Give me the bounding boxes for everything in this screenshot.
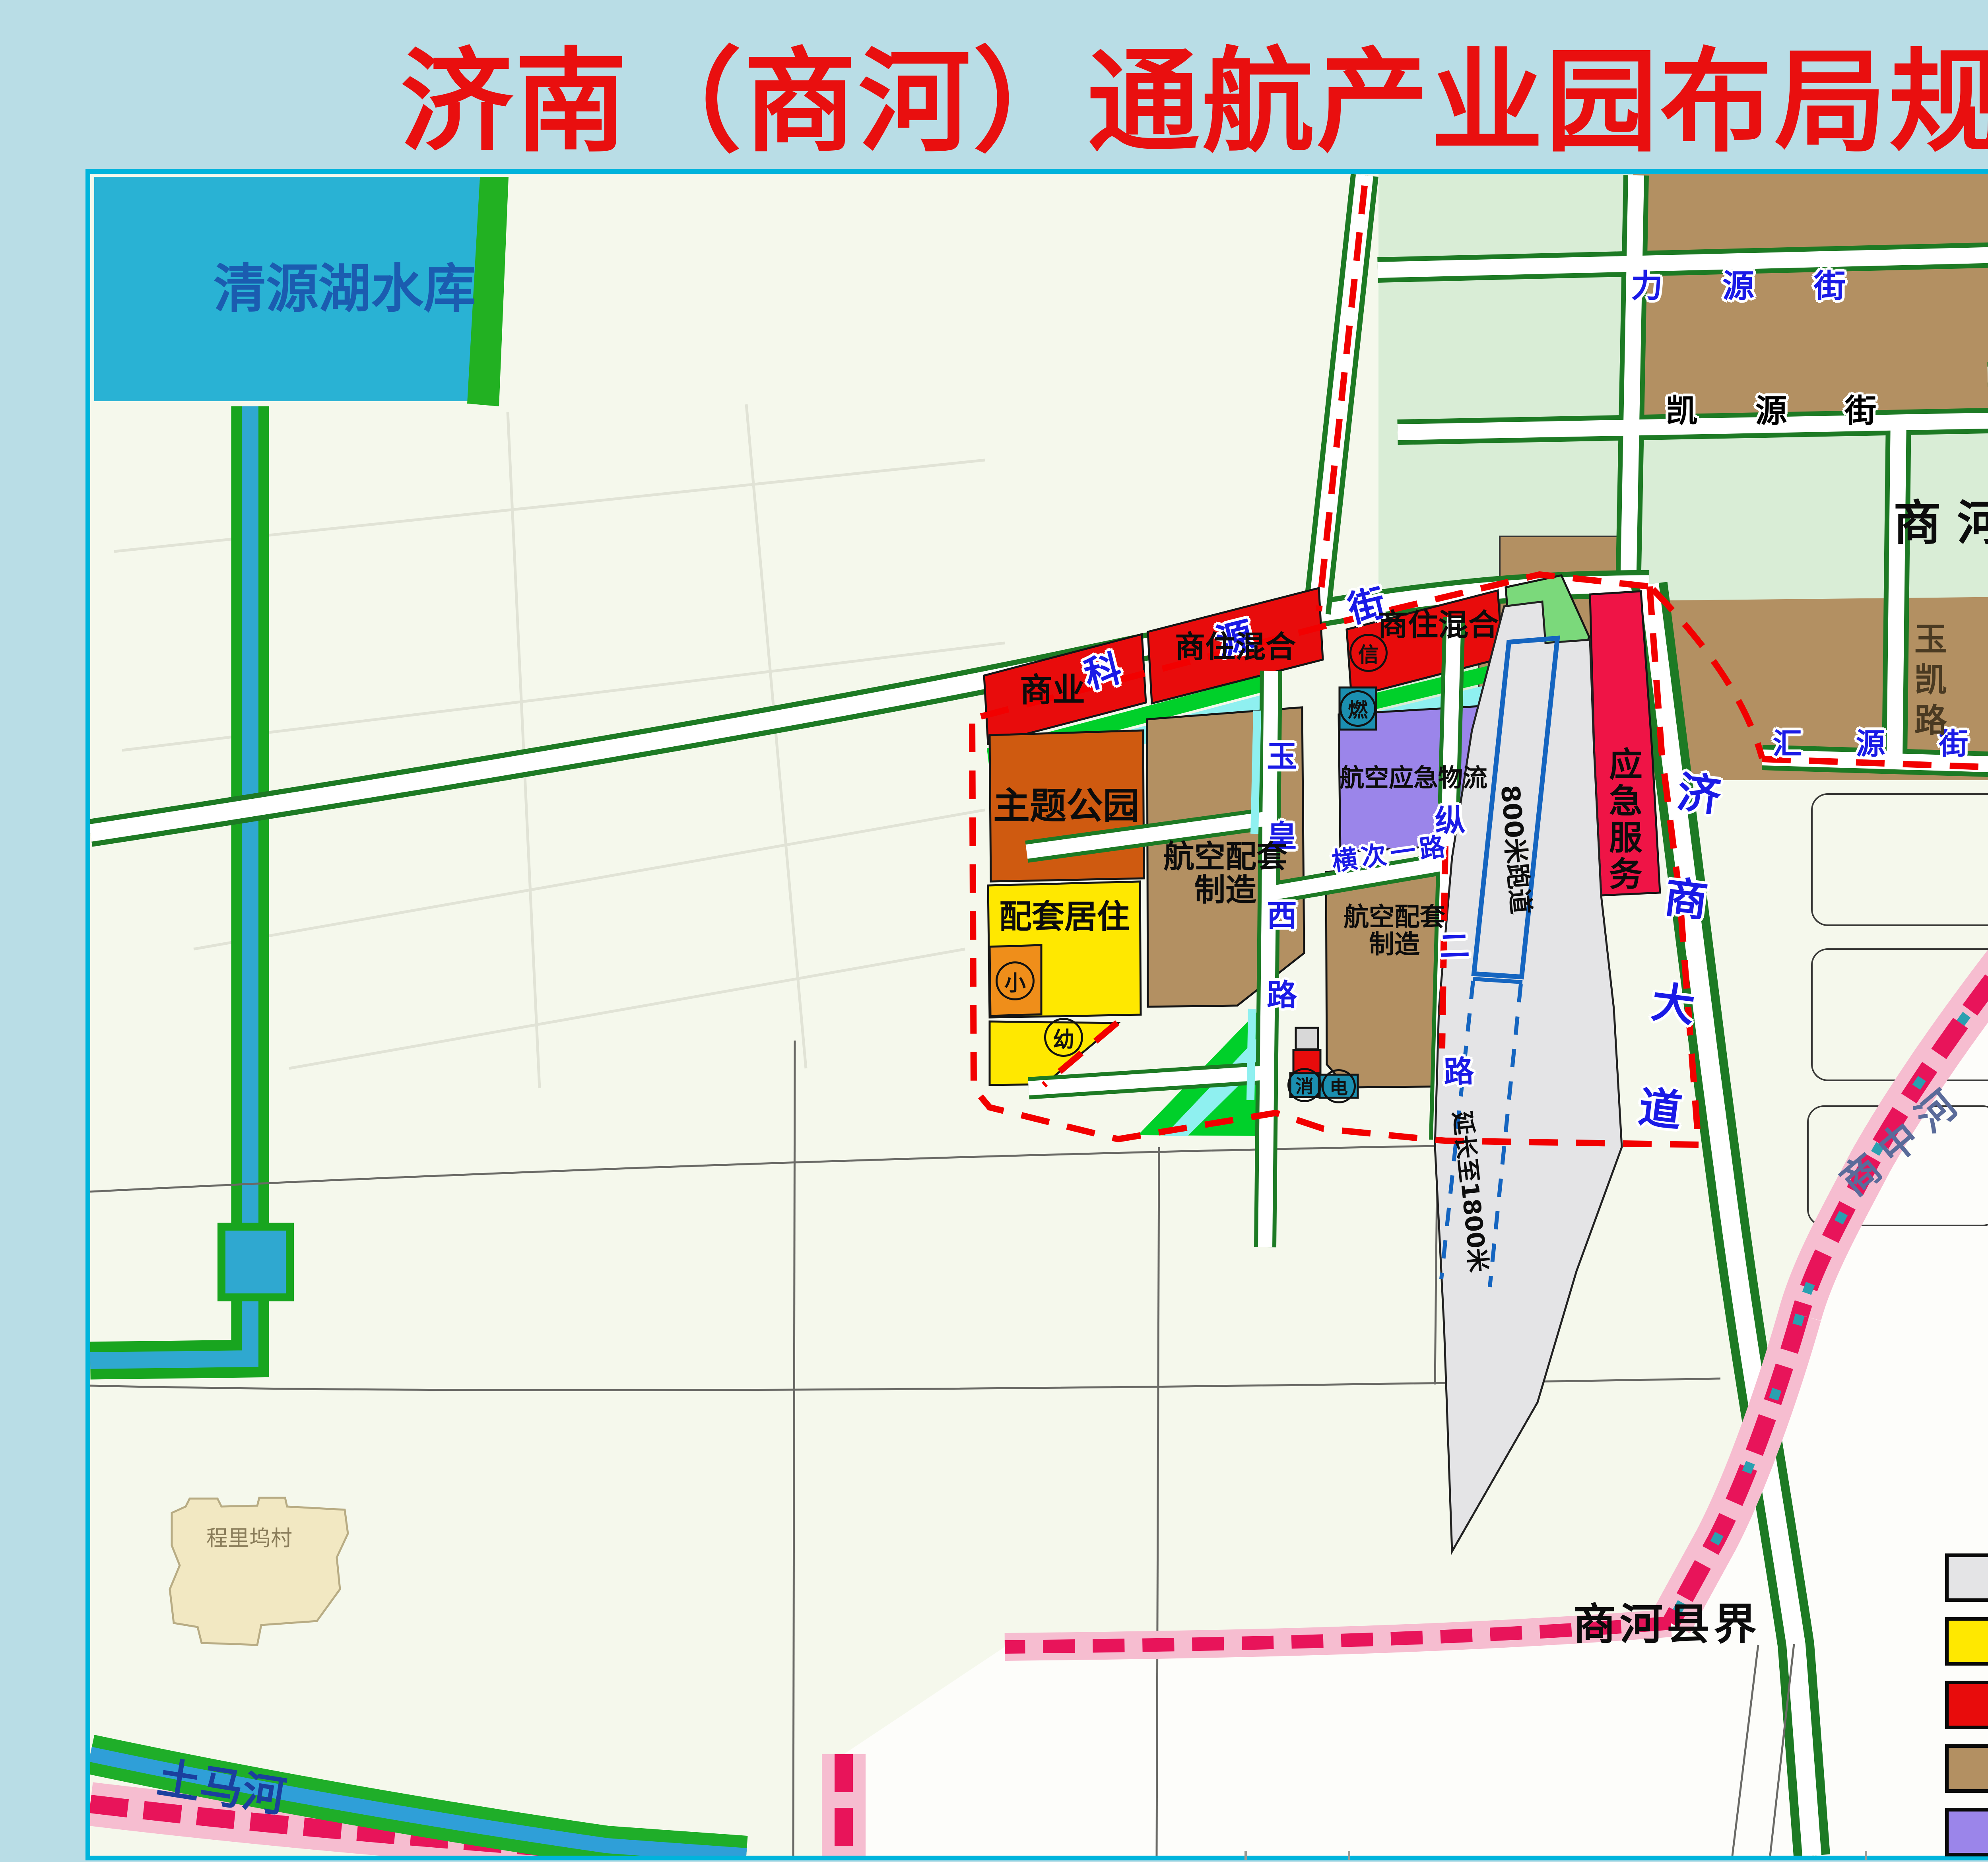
legend-swatch-residential <box>1945 1617 1988 1666</box>
legend-row-airport: 机场用地 <box>1945 1547 1988 1608</box>
icon-xiao: 小 <box>996 961 1035 1000</box>
road-label-yukai: 玉凯路 <box>1910 622 1945 744</box>
canal-pond <box>221 1227 290 1297</box>
frame-stray-line-3 <box>1865 1851 1867 1860</box>
road-label-huiyuan: 汇源街 <box>1773 728 1988 760</box>
reservoir-label: 清源湖水库 <box>214 261 476 318</box>
icon-you: 幼 <box>1044 1018 1083 1057</box>
zone-label-shangye: 商业 <box>1020 673 1085 709</box>
legend-swatch-industrial <box>1945 1744 1988 1793</box>
road-label-liyuan: 力源街 <box>1631 269 1905 303</box>
legend-row-industrial: 工业用地 <box>1945 1738 1988 1798</box>
zone-label-zhuti: 主题公园 <box>993 786 1140 825</box>
legend-swatch-airport <box>1945 1553 1988 1602</box>
legend-row-logistics: 物流用地 <box>1945 1802 1988 1862</box>
icon-xin: 信 <box>1349 634 1388 672</box>
small-gray-block <box>1296 1028 1318 1049</box>
zone-label-hkyj: 航空应急物流 <box>1340 765 1487 792</box>
canal <box>90 406 250 1361</box>
frame-stray-line-1 <box>1244 1851 1247 1860</box>
boundary-label-xianjie: 商河县界 <box>1573 1602 1761 1648</box>
zone-label-yingji: 应急服务 <box>1605 747 1641 893</box>
zone-label-hangkong-1: 航空配套制造 <box>1160 840 1291 907</box>
legend-row-residential: 居住用地 <box>1945 1611 1988 1671</box>
icon-ran: 燃 <box>1340 690 1376 727</box>
zone-label-hangkong-2: 航空配套制造 <box>1339 904 1450 959</box>
icon-xiaofang: 消 <box>1287 1068 1322 1102</box>
zone-label-shangzhu-1: 商住混合 <box>1175 631 1296 663</box>
icon-dian: 电 <box>1322 1069 1356 1103</box>
legend-swatch-commercial <box>1945 1681 1988 1729</box>
page-title: 济南（商河）通航产业园布局规划图 <box>0 11 1988 173</box>
map-canvas: 清源湖水库 科源街 力源街 凯源街 汇源街 玉凯路 大岭路 济商大道 商河经济开… <box>85 169 1988 1860</box>
legend-swatch-logistics <box>1945 1808 1988 1856</box>
legend-row-commercial: 商业服务业设施用地 <box>1945 1675 1988 1735</box>
area-label-kaifaqu: 商河经济开发区 <box>1893 498 1988 549</box>
zone-label-shangzhu-2: 商住混合 <box>1378 609 1499 641</box>
road-label-kaiyuan: 凯源街 <box>1666 394 1934 428</box>
frame-stray-line-2 <box>1348 1851 1350 1860</box>
village-label: 程里坞村 <box>206 1527 292 1550</box>
village-footprint <box>170 1498 348 1645</box>
zone-label-peitao: 配套居住 <box>999 900 1130 935</box>
